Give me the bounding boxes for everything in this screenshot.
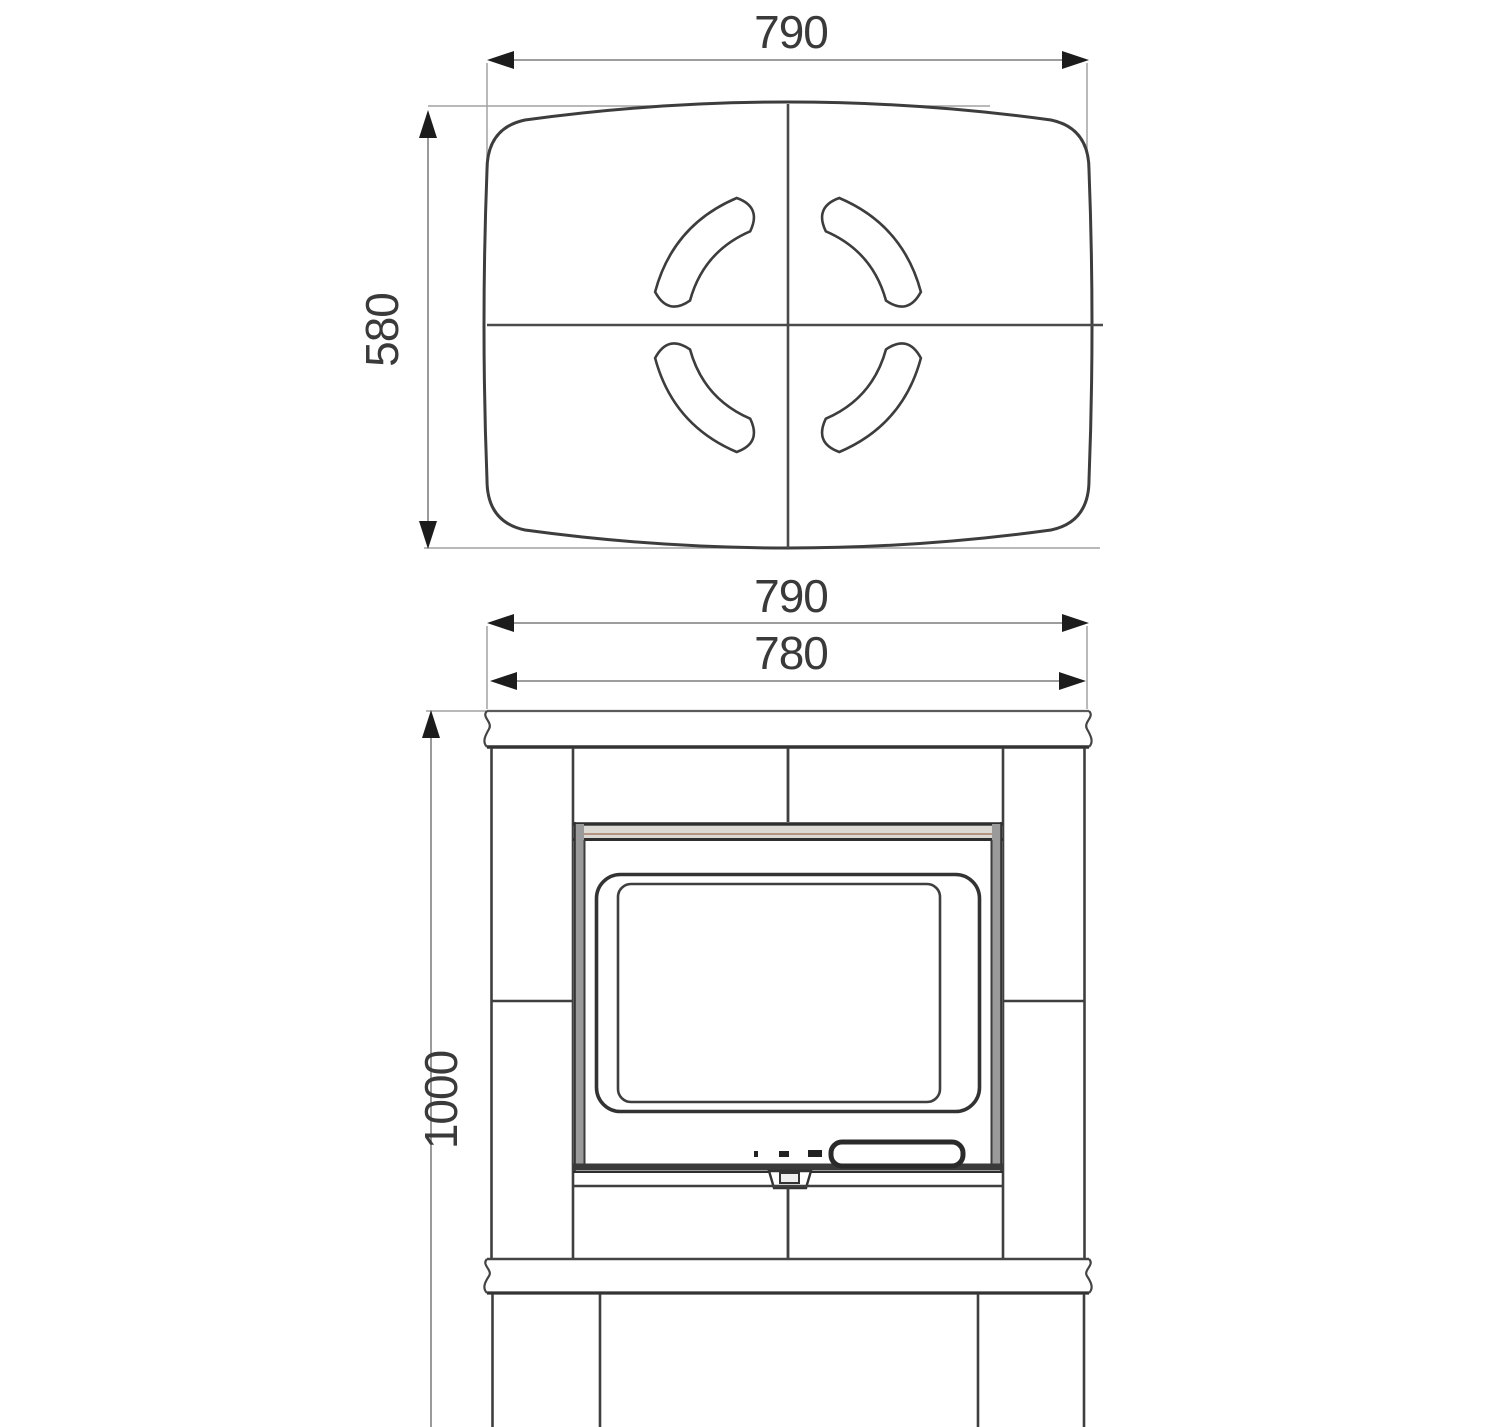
top-view: 790 580 bbox=[356, 6, 1103, 549]
latch-knob bbox=[780, 1173, 799, 1183]
firebox-door bbox=[573, 822, 1003, 1188]
plinth bbox=[493, 1294, 1085, 1427]
slab-end-profile-left bbox=[484, 1259, 489, 1293]
glass-window-inner bbox=[618, 884, 940, 1102]
front-view: 790 780 1000 bbox=[415, 570, 1092, 1427]
dim-front-body-width-label: 780 bbox=[754, 627, 828, 679]
technical-drawing-sheet: 790 580 790 bbox=[0, 0, 1500, 1427]
slab-end-profile-right bbox=[1086, 711, 1091, 747]
vent-mark-large bbox=[808, 1150, 822, 1157]
tile-row-below-door bbox=[573, 1186, 1003, 1258]
arrow-right-icon bbox=[1062, 614, 1089, 632]
dim-front-height-label: 1000 bbox=[415, 1051, 467, 1149]
arrow-right-icon bbox=[1059, 672, 1086, 690]
dim-top-width-label: 790 bbox=[754, 6, 828, 58]
vent-mark-small bbox=[754, 1151, 758, 1157]
arrow-left-icon bbox=[490, 672, 517, 690]
dim-front-height: 1000 bbox=[415, 710, 487, 1427]
arrow-left-icon bbox=[487, 51, 514, 69]
vent-mark-medium bbox=[779, 1151, 789, 1157]
door-top-band bbox=[573, 826, 1003, 838]
arrow-up-icon bbox=[419, 110, 437, 138]
arrow-right-icon bbox=[1062, 51, 1089, 69]
stove-dimension-drawing: 790 580 790 bbox=[0, 0, 1500, 1427]
dim-top-depth-label: 580 bbox=[356, 293, 408, 367]
dim-front-top-width-label: 790 bbox=[754, 570, 828, 622]
arrow-up-icon bbox=[422, 710, 440, 738]
arrow-down-icon bbox=[419, 521, 437, 549]
dim-front-body-width: 780 bbox=[490, 627, 1086, 690]
arrow-left-icon bbox=[487, 614, 514, 632]
base-slab bbox=[484, 1259, 1091, 1293]
door-handle bbox=[831, 1142, 963, 1166]
slab-end-profile-left bbox=[484, 711, 489, 747]
top-slab bbox=[484, 711, 1091, 747]
slab-end-profile-right bbox=[1086, 1259, 1091, 1293]
